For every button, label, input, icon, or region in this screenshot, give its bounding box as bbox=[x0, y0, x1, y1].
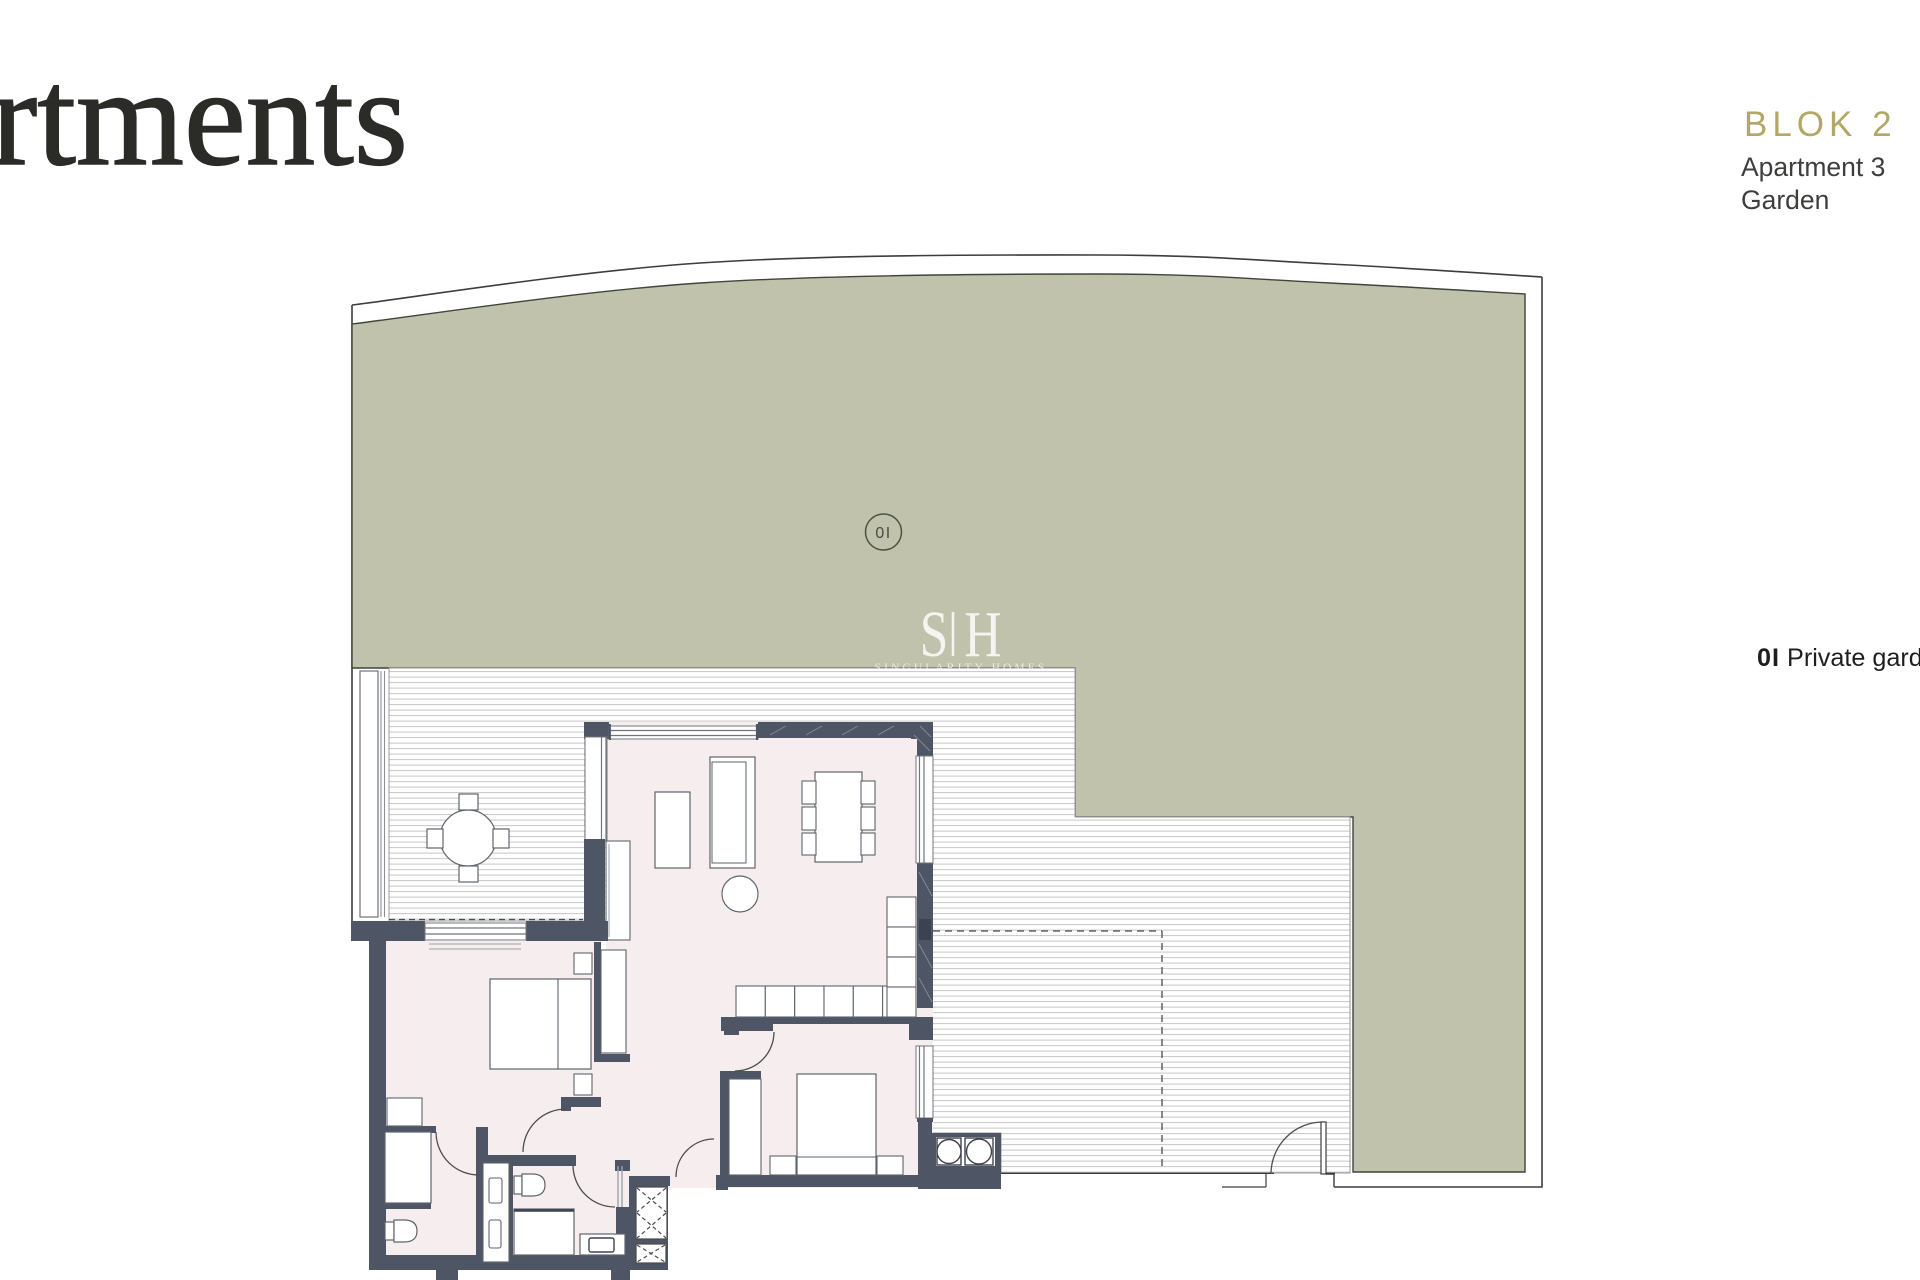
svg-text:Apartment 3: Apartment 3 bbox=[1741, 152, 1885, 182]
svg-text:rtments: rtments bbox=[0, 41, 408, 195]
svg-text:BLOK 2: BLOK 2 bbox=[1744, 105, 1897, 144]
svg-text:H: H bbox=[964, 597, 1001, 671]
svg-text:SINGULARITY HOMES: SINGULARITY HOMES bbox=[875, 662, 1048, 674]
svg-text:Garden: Garden bbox=[1741, 185, 1829, 215]
svg-text:S: S bbox=[920, 597, 949, 671]
svg-text:0I: 0I bbox=[875, 525, 891, 542]
svg-text:0I Private garden: 0I Private garden bbox=[1757, 644, 1920, 672]
